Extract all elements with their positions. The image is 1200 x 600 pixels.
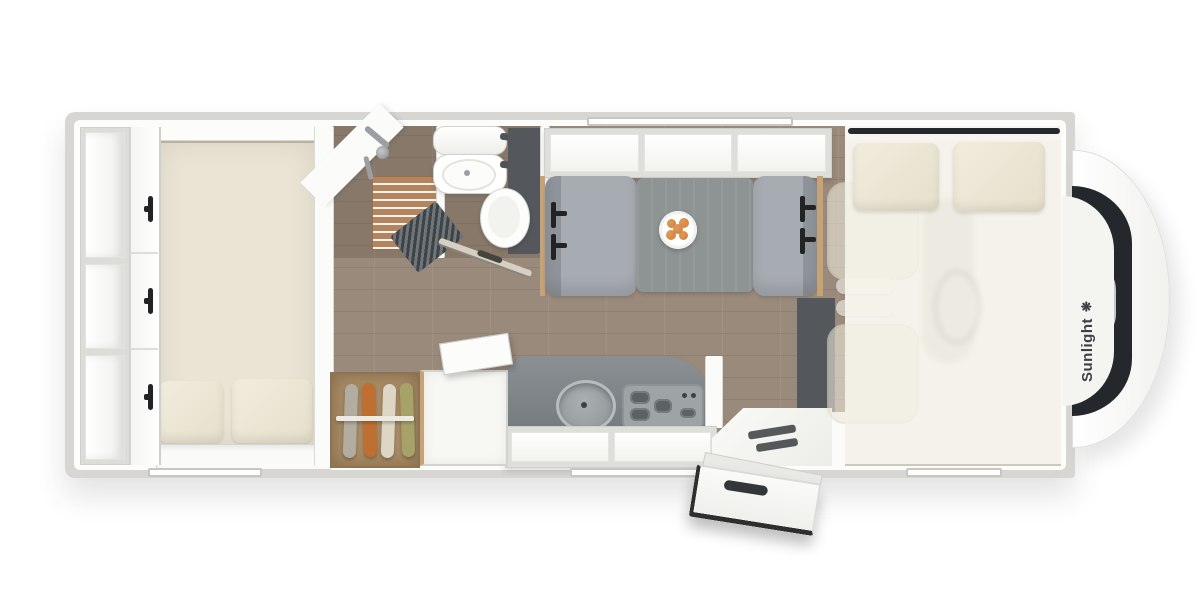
- bed-pillow-left: [159, 381, 223, 443]
- garment-gray: [343, 384, 359, 458]
- cabinet-seam: [130, 252, 158, 254]
- cab-door-window: [906, 468, 1002, 477]
- bed-head-rail: [156, 141, 316, 143]
- bench-trim: [817, 176, 823, 296]
- bed-foot-shelf: [156, 444, 332, 470]
- cab-bed-pillow-left: [853, 143, 939, 211]
- locker-cell: [737, 134, 826, 172]
- kitchen-sink: [556, 380, 616, 432]
- seatbelt: [800, 196, 805, 222]
- cab-bed-pillow-right: [953, 142, 1045, 212]
- dinette-bench-left: [545, 176, 637, 296]
- toilet: [480, 188, 530, 248]
- shelf-cell: [85, 264, 125, 349]
- brand-name: Sunlight: [1079, 318, 1096, 382]
- windshield-top-edge: [848, 128, 1060, 134]
- locker-cell: [550, 134, 639, 172]
- locker-cell: [644, 134, 733, 172]
- toilet-lid: [488, 196, 520, 238]
- three-burner-hob: [622, 384, 704, 430]
- sunlight-logo-icon: ❋: [1079, 301, 1095, 312]
- burner: [630, 408, 650, 421]
- cabinet-handle: [148, 384, 153, 410]
- entry-door-handle: [723, 480, 768, 497]
- plate-of-food: [659, 211, 697, 249]
- cabinet-handle: [148, 196, 153, 222]
- dinette-bench-right: [753, 176, 817, 296]
- brand-lettering: Sunlight ❋: [1078, 232, 1096, 382]
- bed-pillow-right: [232, 379, 312, 443]
- shelf-cell: [85, 132, 125, 258]
- washbasin: [433, 154, 507, 194]
- rear-shelf-column: [80, 127, 130, 465]
- rear-wardrobe-column: [130, 127, 161, 465]
- hob-knob: [682, 393, 687, 398]
- burner: [654, 399, 672, 413]
- washbasin-drain: [464, 170, 470, 176]
- dinette-window: [587, 117, 793, 126]
- hob-grate: [680, 408, 696, 418]
- overhead-lockers-bottom: [505, 426, 717, 468]
- wardrobe-rail: [336, 416, 414, 421]
- locker-cell: [511, 432, 609, 462]
- food-item: [673, 224, 683, 234]
- locker-cell: [614, 432, 712, 462]
- overhead-lockers-top: [544, 128, 832, 178]
- kitchen-end-wall: [705, 356, 723, 428]
- hob-knob: [691, 393, 696, 398]
- bedroom-window: [148, 468, 262, 477]
- refrigerator: [420, 370, 508, 466]
- garment-cream: [381, 384, 397, 458]
- burner: [630, 391, 650, 404]
- cabinet-handle: [148, 288, 153, 314]
- washbasin-mirror-reflection: [433, 126, 507, 155]
- shower-head: [376, 146, 389, 159]
- kitchen-window: [570, 468, 698, 477]
- sink-drain: [581, 402, 587, 408]
- seatbelt: [800, 228, 805, 254]
- cabinet-seam: [130, 348, 158, 350]
- shelf-cell: [85, 355, 125, 460]
- seatbelt: [551, 202, 556, 228]
- floorplan-canvas: Sunlight ❋: [0, 0, 1200, 600]
- seatbelt: [551, 234, 556, 260]
